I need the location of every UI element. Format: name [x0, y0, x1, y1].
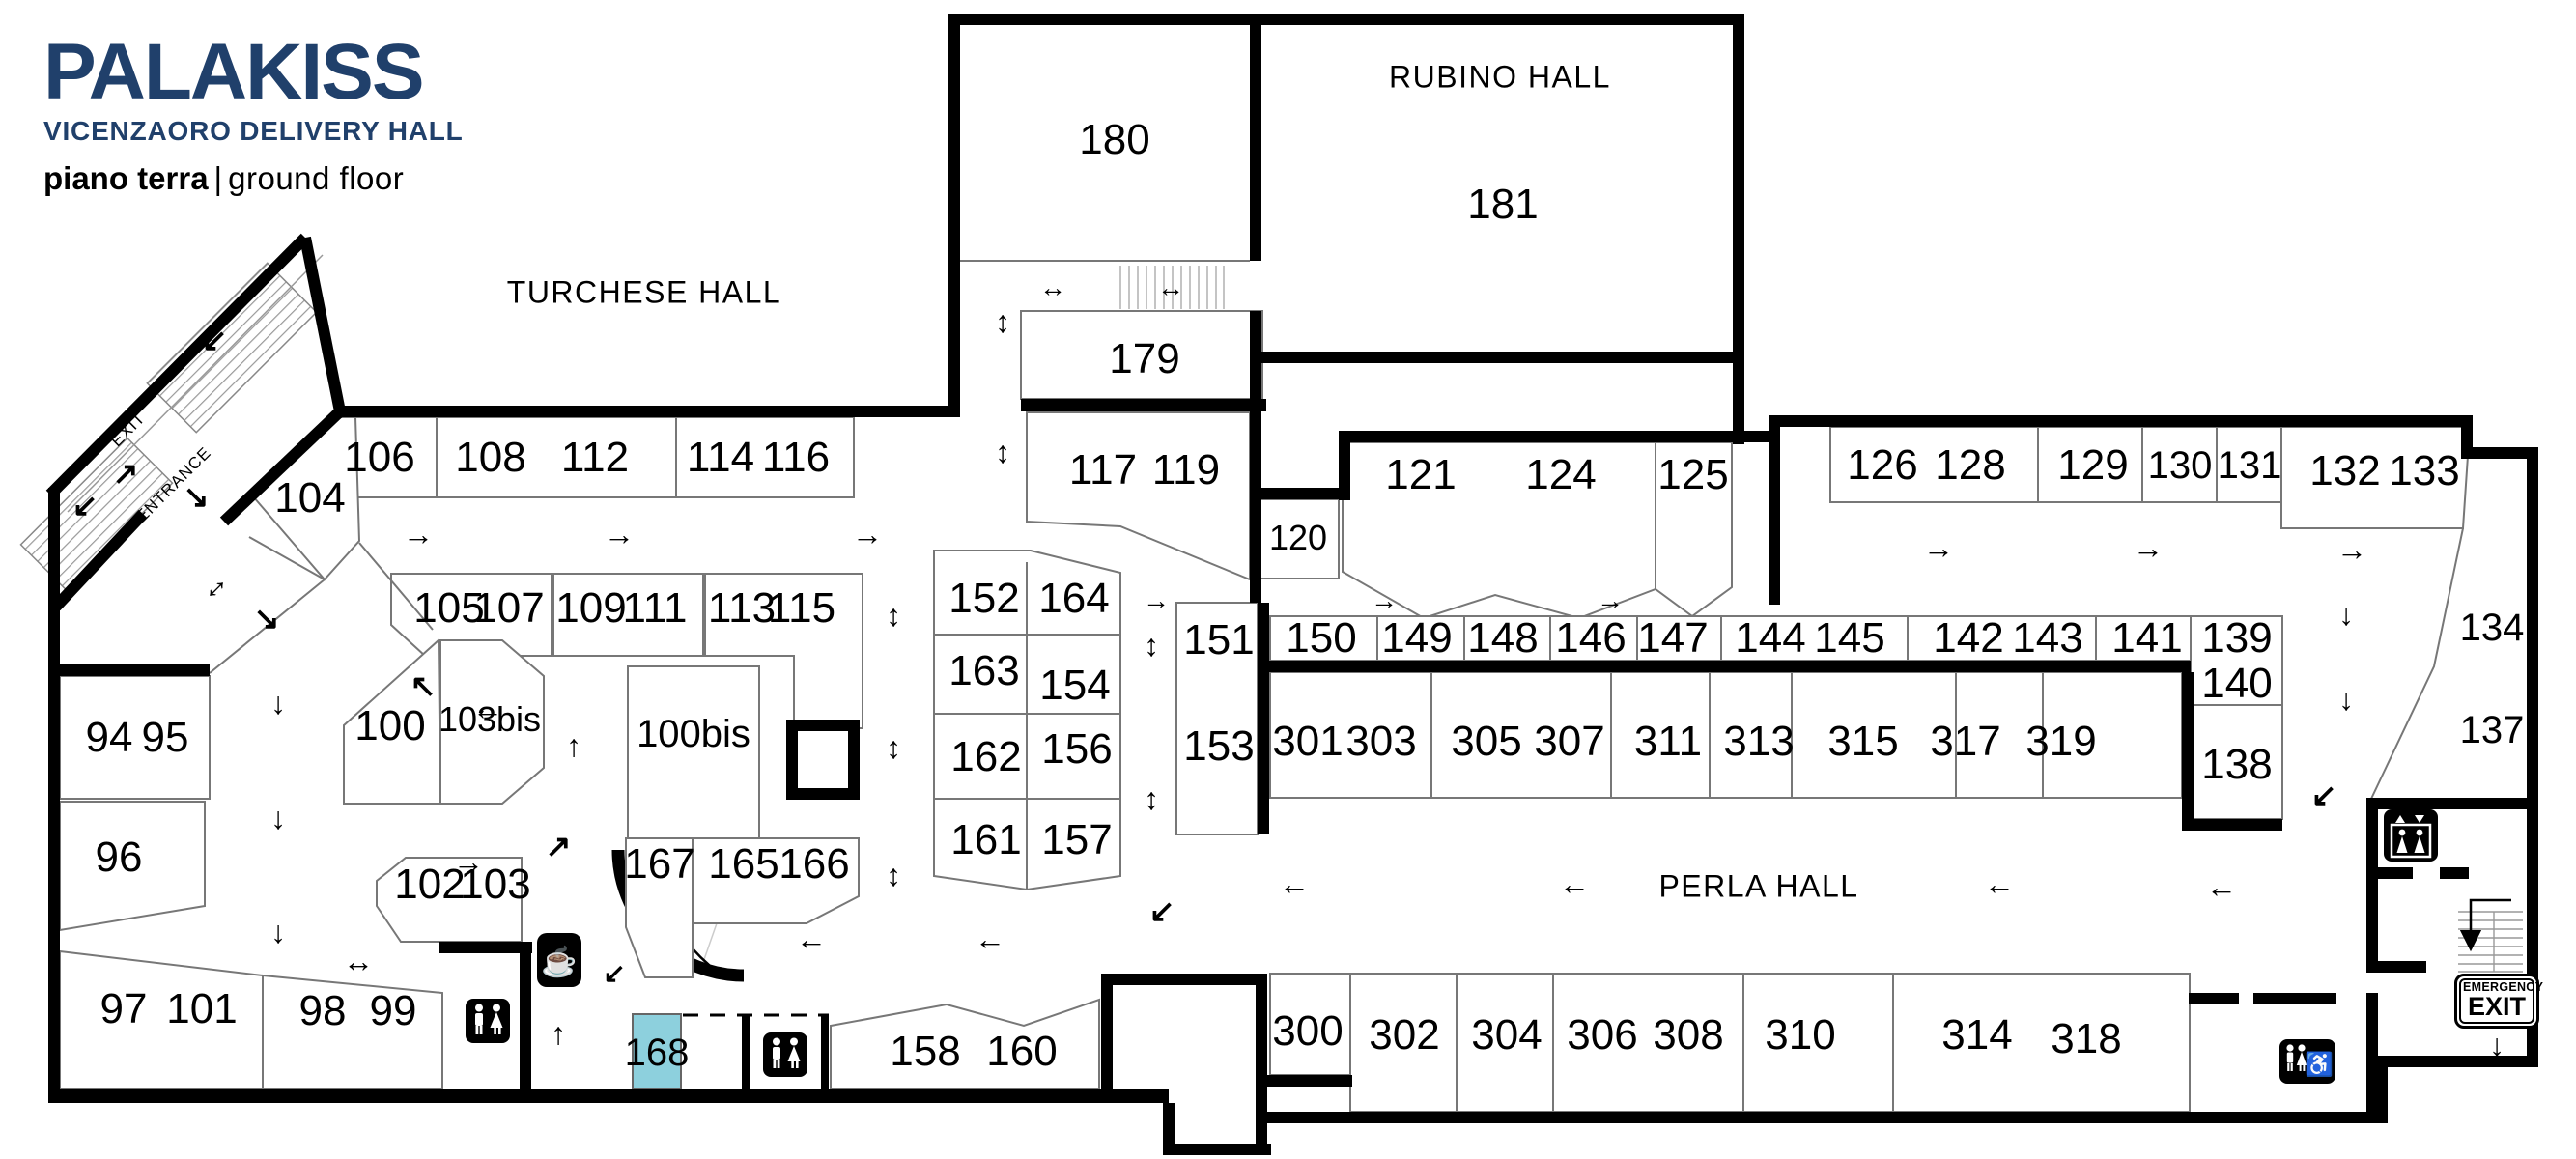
- booth-label-165[interactable]: 165: [708, 843, 778, 886]
- booth-label-160[interactable]: 160: [986, 1031, 1057, 1073]
- booth-label-150[interactable]: 150: [1286, 617, 1356, 660]
- arrow-down-icon: ↓: [270, 688, 286, 719]
- booth-label-143[interactable]: 143: [2012, 617, 2082, 660]
- svg-text:♿: ♿: [2305, 1051, 2334, 1078]
- arrow-down-left-icon: ↙: [603, 960, 625, 987]
- booth-label-179[interactable]: 179: [1109, 338, 1179, 381]
- booth-label-111[interactable]: 111: [623, 587, 688, 630]
- arrow-left-icon: ←: [472, 693, 503, 724]
- floor-label-english: ground floor: [228, 160, 404, 196]
- arrow-right-icon: →: [453, 846, 484, 877]
- booth-label-144[interactable]: 144: [1735, 617, 1805, 660]
- arrow-left-icon: ←: [1559, 868, 1590, 899]
- arrow-right-icon: →: [1371, 587, 1398, 614]
- arrow-right-icon: →: [604, 519, 635, 550]
- emergency-exit-sign: EMERGENCY EXIT: [2454, 974, 2539, 1029]
- arrow-down-icon: ↓: [2489, 1030, 2505, 1060]
- booth-label-132[interactable]: 132: [2309, 450, 2380, 493]
- booth-label-164[interactable]: 164: [1038, 578, 1109, 620]
- booth-label-131[interactable]: 131: [2218, 446, 2282, 485]
- arrow-down-right-icon: ↘: [184, 481, 210, 512]
- booth-label-121[interactable]: 121: [1385, 454, 1456, 496]
- booth-label-180[interactable]: 180: [1079, 119, 1149, 161]
- booth-label-97[interactable]: 97: [100, 988, 148, 1031]
- structural-column: [792, 725, 854, 794]
- arrow-up-down-icon: ↕: [886, 860, 901, 890]
- booth-label-151[interactable]: 151: [1183, 619, 1254, 662]
- logo: PALAKISS VICENZAORO DELIVERY HALL piano …: [43, 33, 464, 197]
- booth-label-301[interactable]: 301: [1272, 721, 1343, 763]
- arrow-down-icon: ↓: [2338, 599, 2354, 630]
- booth-label-126[interactable]: 126: [1847, 444, 1917, 487]
- arrow-up-icon: ↑: [551, 1018, 566, 1049]
- arrow-up-down-icon: ↕: [1144, 783, 1159, 814]
- logo-floor-label: piano terra|ground floor: [43, 160, 464, 197]
- booth-label-109[interactable]: 109: [555, 587, 626, 630]
- booth-label-98[interactable]: 98: [299, 990, 347, 1032]
- arrow-down-icon: ↓: [270, 917, 286, 947]
- floor-label-divider: |: [209, 160, 229, 196]
- booth-label-148[interactable]: 148: [1467, 617, 1538, 660]
- arrow-left-icon: ←: [1984, 868, 2015, 899]
- coffee-icon: ☕: [537, 933, 581, 987]
- booth-label-120[interactable]: 120: [1269, 521, 1327, 555]
- toilets-icon: [466, 999, 510, 1043]
- booth-label-107[interactable]: 107: [473, 587, 544, 630]
- booth-label-125[interactable]: 125: [1657, 454, 1728, 496]
- booth-label-119[interactable]: 119: [1152, 449, 1220, 492]
- booth-label-305[interactable]: 305: [1451, 721, 1521, 763]
- svg-text:☕: ☕: [541, 944, 577, 978]
- booth-label-95[interactable]: 95: [142, 717, 189, 759]
- emergency-stairs: [2458, 900, 2523, 972]
- logo-title: PALAKISS: [43, 33, 464, 112]
- arrow-up-down-icon: ↕: [995, 306, 1010, 337]
- booth-label-137[interactable]: 137: [2460, 711, 2525, 749]
- booth-label-141[interactable]: 141: [2111, 617, 2182, 660]
- arrow-up-down-icon: ↕: [886, 600, 901, 631]
- booth-label-117[interactable]: 117: [1069, 449, 1137, 492]
- arrow-right-icon: →: [1597, 587, 1624, 614]
- booth-label-100bis[interactable]: 100bis: [637, 715, 750, 753]
- arrow-down-icon: ↓: [2338, 684, 2354, 715]
- booth-label-129[interactable]: 129: [2057, 444, 2128, 487]
- booth-label-147[interactable]: 147: [1637, 617, 1708, 660]
- booth-label-108[interactable]: 108: [455, 437, 525, 479]
- floor-label-italian: piano terra: [43, 160, 209, 196]
- booth-label-311[interactable]: 311: [1634, 721, 1702, 763]
- booth-label-168[interactable]: 168: [625, 1033, 690, 1072]
- booth-label-133[interactable]: 133: [2389, 450, 2459, 493]
- booth-label-115[interactable]: 115: [768, 587, 835, 630]
- booth-label-308[interactable]: 308: [1653, 1014, 1723, 1057]
- booth-label-315[interactable]: 315: [1827, 721, 1898, 763]
- booth-label-162[interactable]: 162: [950, 736, 1021, 778]
- arrow-down-left-icon: ↙: [1149, 895, 1175, 926]
- booth-label-307[interactable]: 307: [1534, 721, 1604, 763]
- booth-label-158[interactable]: 158: [890, 1031, 960, 1073]
- arrow-left-icon: ←: [975, 923, 1005, 954]
- booth-label-317[interactable]: 317: [1930, 721, 2000, 763]
- arrow-down-right-icon: ↘: [254, 603, 280, 634]
- arrow-left-icon: ←: [1279, 868, 1310, 899]
- booth-label-101[interactable]: 101: [166, 988, 237, 1031]
- hall-label-perla: PERLA HALL: [1658, 869, 1858, 905]
- arrow-left-right-icon: ↔: [1039, 274, 1066, 301]
- booth-label-167[interactable]: 167: [624, 843, 694, 886]
- hall-label-rubino: RUBINO HALL: [1389, 60, 1611, 96]
- arrow-down-left-icon: ↙: [2311, 779, 2337, 810]
- arrow-up-left-icon: ↖: [410, 670, 437, 701]
- arrow-left-icon: ←: [2206, 871, 2237, 902]
- arrow-up-right-icon: ↗: [546, 831, 572, 862]
- booth-label-96[interactable]: 96: [96, 836, 143, 879]
- arrow-right-icon: →: [2336, 534, 2367, 565]
- booth-label-124[interactable]: 124: [1525, 454, 1596, 496]
- arrow-up-icon: ↑: [566, 730, 581, 761]
- booth-label-153[interactable]: 153: [1183, 725, 1254, 768]
- booth-label-157[interactable]: 157: [1041, 819, 1112, 862]
- logo-subtitle: VICENZAORO DELIVERY HALL: [43, 116, 464, 147]
- booth-label-138[interactable]: 138: [2201, 744, 2272, 786]
- booth-label-310[interactable]: 310: [1765, 1014, 1835, 1057]
- hall-label-turchese: TURCHESE HALL: [507, 275, 781, 311]
- booth-label-106[interactable]: 106: [344, 437, 414, 479]
- booth-label-163[interactable]: 163: [948, 650, 1019, 693]
- arrow-left-right-icon: ↔: [343, 946, 374, 976]
- arrow-down-icon: ↓: [270, 803, 286, 834]
- booth-label-99[interactable]: 99: [370, 990, 417, 1032]
- booth-label-140[interactable]: 140: [2201, 663, 2272, 705]
- booth-label-318[interactable]: 318: [2051, 1018, 2121, 1060]
- booth-label-130[interactable]: 130: [2148, 446, 2213, 485]
- arrow-right-icon: →: [403, 519, 434, 550]
- booth-label-100[interactable]: 100: [354, 705, 425, 748]
- arrow-up-down-icon: ↕: [1144, 630, 1159, 661]
- booth-label-113[interactable]: 113: [708, 587, 776, 630]
- booth-label-94[interactable]: 94: [86, 717, 133, 759]
- arrow-left-icon: ←: [796, 923, 827, 954]
- booth-label-116[interactable]: 116: [762, 437, 830, 479]
- booth-label-313[interactable]: 313: [1723, 721, 1794, 763]
- booth-label-104[interactable]: 104: [274, 477, 345, 520]
- booth-label-139[interactable]: 139: [2201, 617, 2272, 660]
- booth-label-306[interactable]: 306: [1567, 1014, 1637, 1057]
- arrow-right-icon: →: [2133, 532, 2164, 563]
- booth-label-181[interactable]: 181: [1467, 184, 1538, 226]
- booth-label-146[interactable]: 146: [1555, 617, 1626, 660]
- arrow-down-left-icon: ↙: [202, 325, 228, 355]
- arrow-up-right-icon: ↗: [113, 458, 139, 489]
- accessible-toilets-icon: ♿: [2279, 1039, 2335, 1084]
- arrow-down-left-icon: ↙: [72, 490, 99, 521]
- booth-label-145[interactable]: 145: [1814, 617, 1884, 660]
- toilets-icon-2: [763, 1032, 807, 1077]
- booth-label-319[interactable]: 319: [2025, 721, 2096, 763]
- booth-label-149[interactable]: 149: [1381, 617, 1452, 660]
- arrow-left-right-icon: ↔: [1157, 274, 1184, 301]
- arrow-right-icon: →: [1143, 587, 1170, 614]
- booth-label-300[interactable]: 300: [1272, 1010, 1343, 1053]
- booth-label-314[interactable]: 314: [1941, 1014, 2012, 1057]
- emergency-exit-line2: EXIT: [2463, 995, 2531, 1020]
- booth-label-156[interactable]: 156: [1041, 728, 1112, 771]
- booth-label-303[interactable]: 303: [1345, 721, 1416, 763]
- arrow-right-icon: →: [852, 519, 883, 550]
- booth-label-304[interactable]: 304: [1471, 1014, 1542, 1057]
- booth-label-161[interactable]: 161: [950, 819, 1021, 862]
- arrow-up-down-icon: ↕: [995, 437, 1010, 467]
- booth-label-302[interactable]: 302: [1369, 1014, 1439, 1057]
- booth-label-142[interactable]: 142: [1933, 617, 2003, 660]
- booth-label-114[interactable]: 114: [687, 437, 754, 479]
- booth-label-154[interactable]: 154: [1039, 664, 1110, 707]
- booth-label-112[interactable]: 112: [561, 437, 629, 479]
- booth-label-152[interactable]: 152: [948, 578, 1019, 620]
- booth-label-128[interactable]: 128: [1935, 444, 2005, 487]
- elevator-icon: [2384, 809, 2438, 862]
- booth-label-166[interactable]: 166: [778, 843, 849, 886]
- arrow-up-down-icon: ↕: [886, 732, 901, 763]
- arrow-right-icon: →: [1923, 532, 1954, 563]
- booth-label-134[interactable]: 134: [2460, 608, 2525, 647]
